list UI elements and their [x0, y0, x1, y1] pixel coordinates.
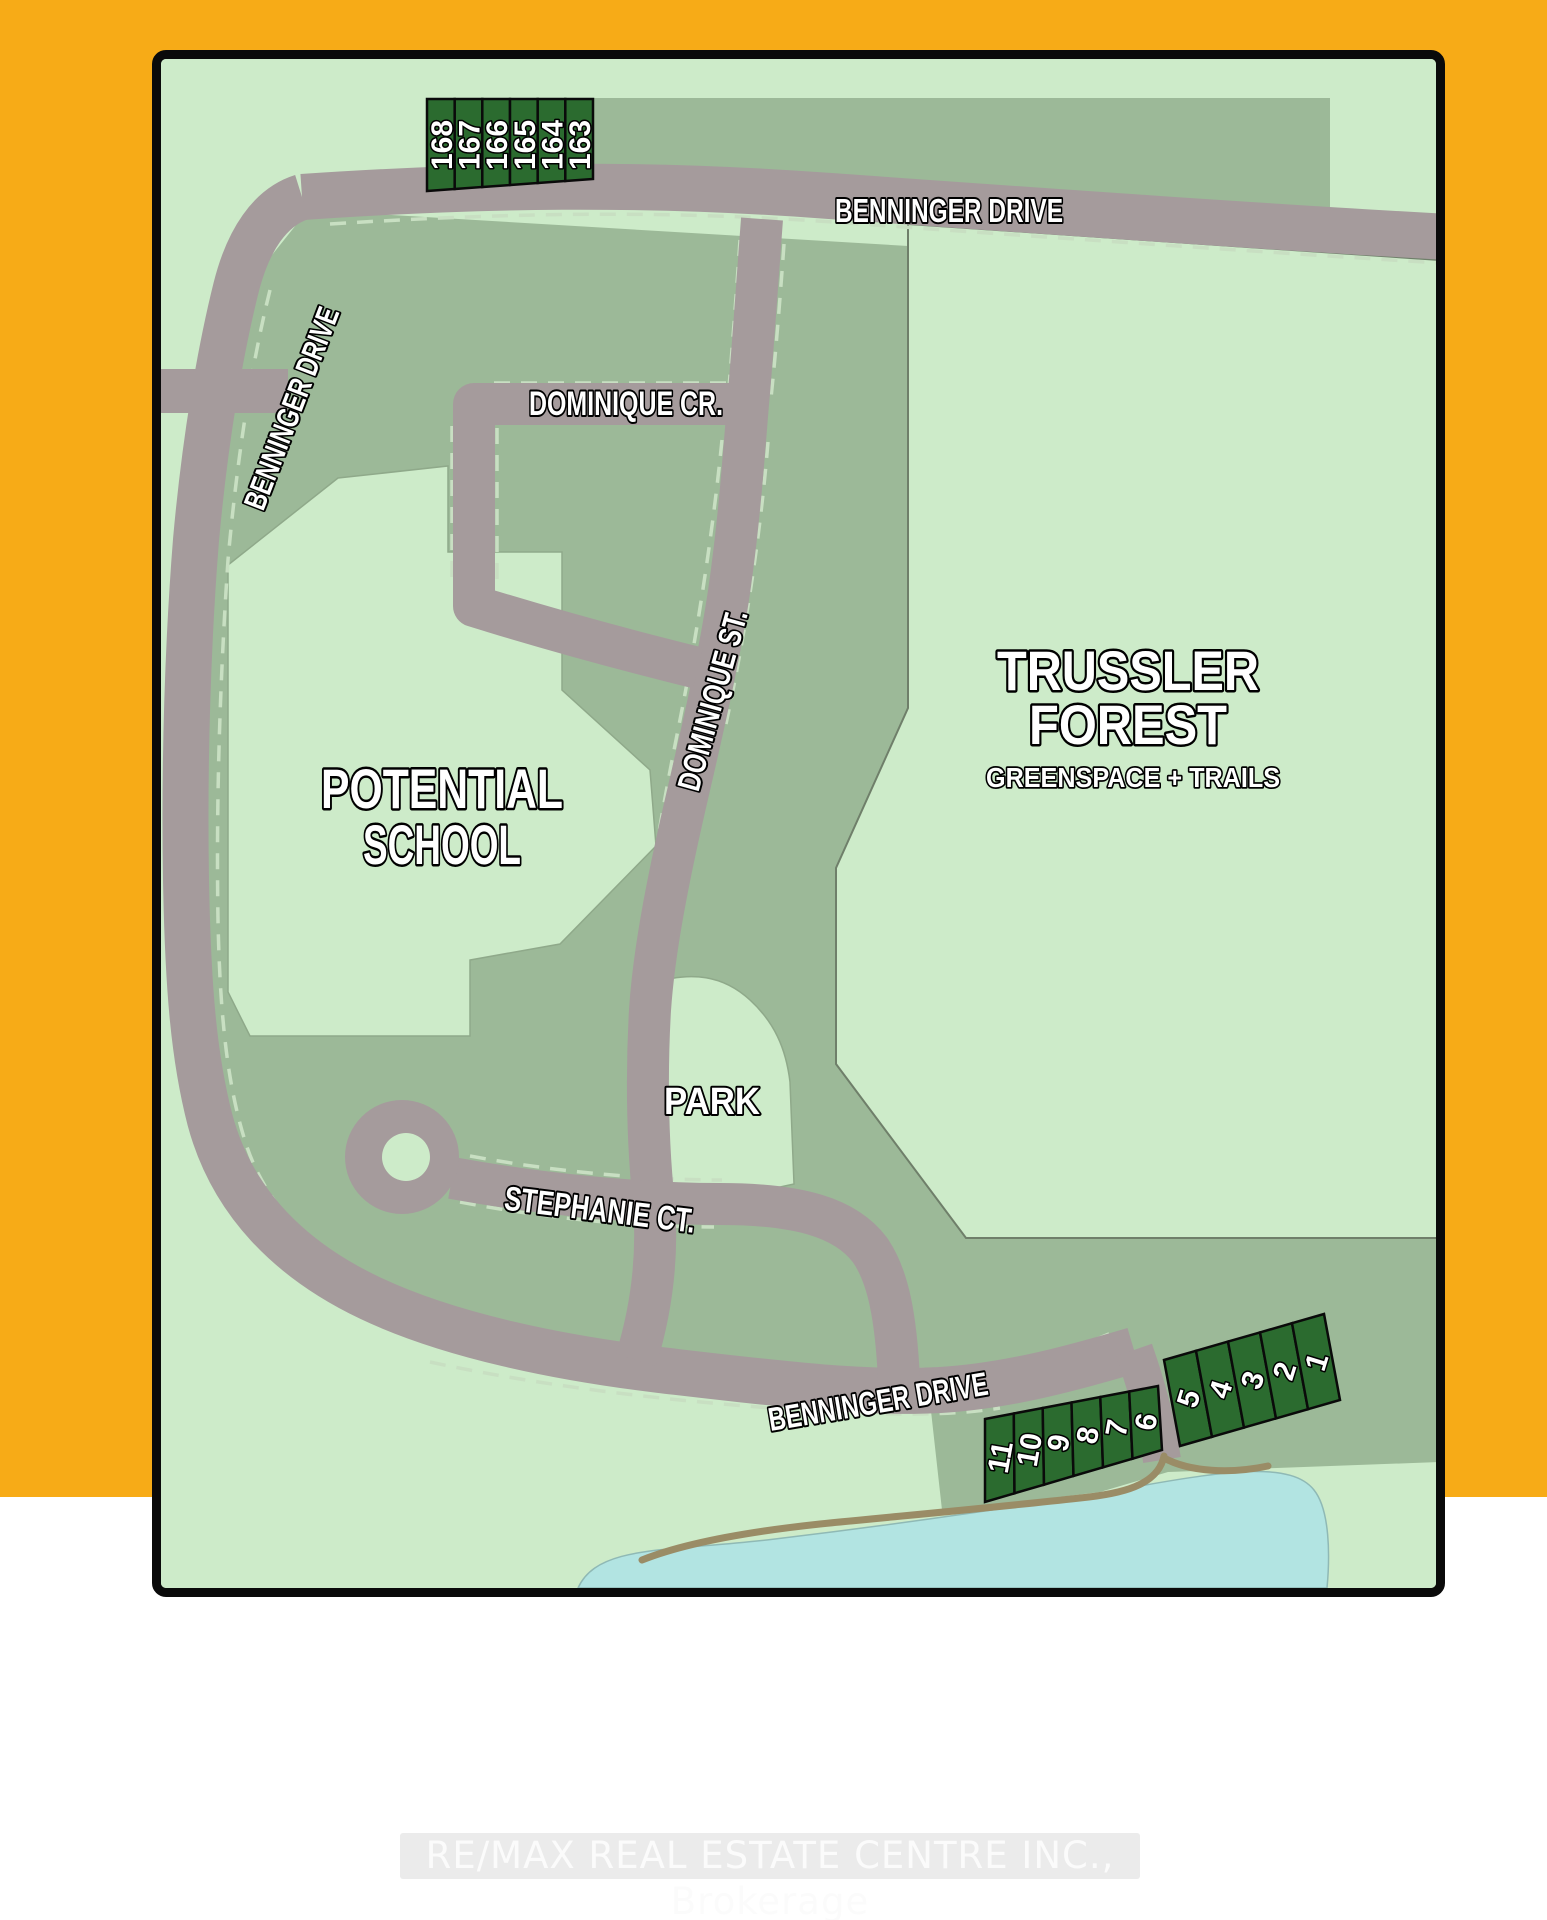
label-park: PARK: [664, 1081, 761, 1123]
cul-de-sac-island: [382, 1133, 430, 1181]
map-canvas: 168 167 166 165 164 163 11 10 9 8: [161, 59, 1436, 1588]
lot-row-north-numbers: 168 167 166 165 164 163: [426, 120, 597, 170]
label-greenspace-trails: GREENSPACE + TRAILS: [986, 762, 1280, 793]
lot-number: 163: [564, 120, 597, 170]
brokerage-watermark: RE/MAX REAL ESTATE CENTRE INC., Brokerag…: [400, 1833, 1140, 1879]
label-dominique-crescent: DOMINIQUE CR.: [529, 385, 723, 423]
subdivision-map: 168 167 166 165 164 163 11 10 9 8: [152, 50, 1445, 1597]
label-potential-school-line1: POTENTIAL: [321, 757, 563, 820]
site-plan-page: 168 167 166 165 164 163 11 10 9 8: [0, 0, 1547, 1920]
label-trussler-forest-line2: FOREST: [1029, 693, 1227, 756]
label-potential-school-line2: SCHOOL: [363, 813, 521, 876]
label-benninger-drive-top: BENNINGER DRIVE: [835, 192, 1063, 229]
